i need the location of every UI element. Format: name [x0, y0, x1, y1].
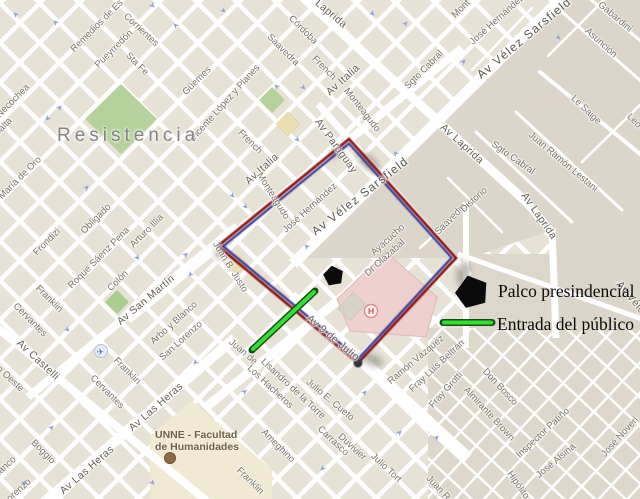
map-viewport[interactable]: Remedios de EsCorrientesPueyrredónSta Fe…	[0, 0, 640, 499]
legend-item-palco: Palco presindencial	[498, 281, 635, 302]
map-canvas	[0, 0, 640, 499]
helipad-h-label: H	[368, 306, 374, 316]
airplane-glyph: ✈	[97, 347, 105, 358]
university-label-line1: UNNE - Facultad	[155, 429, 239, 441]
route-end-knot	[354, 359, 363, 368]
university-label: UNNE - Facultad de Humanidades	[155, 429, 239, 453]
se-fine-grid	[428, 328, 640, 499]
airport-icon: ✈	[94, 344, 108, 358]
legend-item-entrada: Entrada del público	[497, 314, 634, 335]
school-icon	[164, 452, 176, 464]
city-label: Resistencia	[57, 125, 199, 147]
